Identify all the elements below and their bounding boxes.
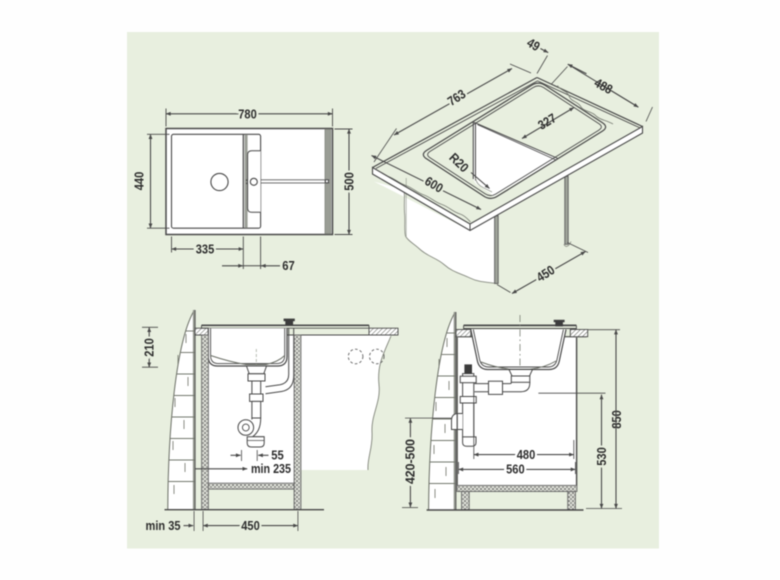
svg-text:335: 335 — [196, 242, 215, 257]
svg-text:440: 440 — [132, 172, 147, 191]
svg-text:450: 450 — [241, 518, 260, 533]
svg-text:780: 780 — [238, 106, 257, 121]
svg-text:560: 560 — [506, 462, 525, 477]
svg-text:67: 67 — [282, 258, 295, 273]
svg-text:500: 500 — [341, 172, 356, 191]
svg-text:min 235: min 235 — [251, 461, 291, 476]
svg-text:min 35: min 35 — [146, 518, 181, 533]
svg-text:420-500: 420-500 — [402, 439, 417, 484]
svg-text:530: 530 — [594, 447, 609, 466]
svg-text:210: 210 — [142, 338, 157, 357]
svg-text:480: 480 — [517, 447, 536, 462]
